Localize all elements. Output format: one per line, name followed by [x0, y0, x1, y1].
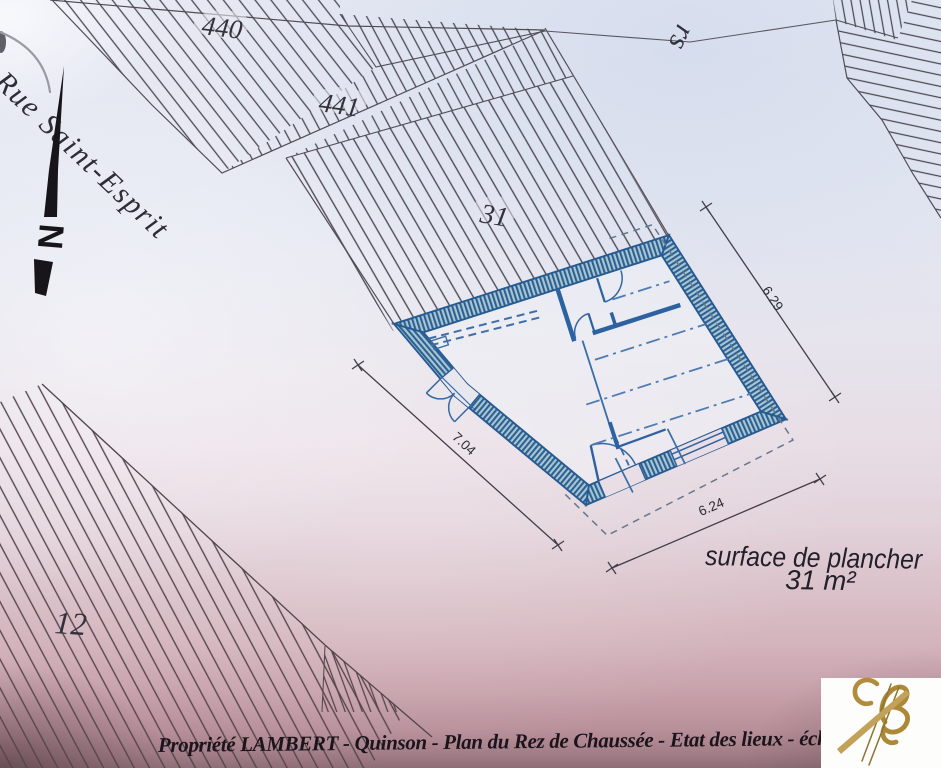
svg-text:N: N — [30, 222, 71, 251]
svg-text:441: 441 — [317, 87, 361, 122]
svg-text:31: 31 — [477, 198, 511, 234]
svg-text:6.24: 6.24 — [696, 495, 727, 519]
svg-text:12: 12 — [54, 604, 88, 642]
svg-text:31 m²: 31 m² — [785, 564, 857, 596]
svg-text:7.04: 7.04 — [449, 429, 479, 458]
svg-text:440: 440 — [200, 10, 244, 45]
svg-text:6.29: 6.29 — [759, 283, 786, 313]
svg-text:rs: rs — [662, 20, 702, 55]
